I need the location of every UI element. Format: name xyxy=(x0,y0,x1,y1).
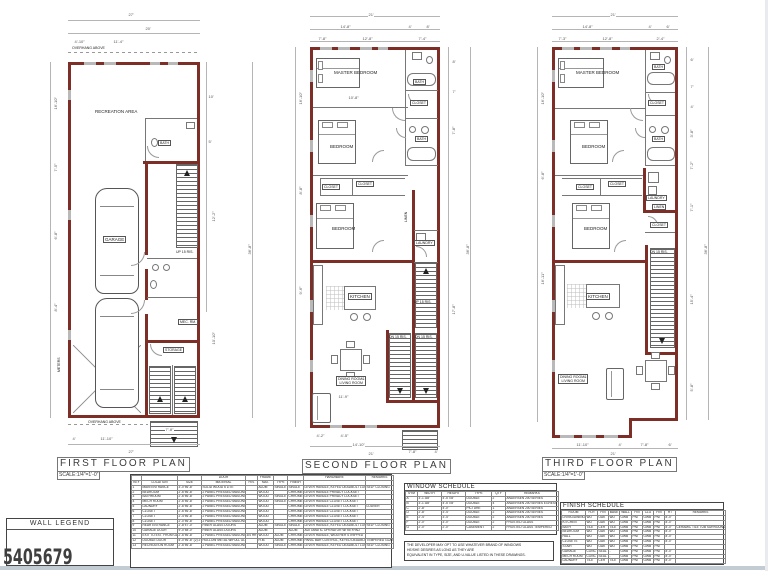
dim-label: 36'-8" xyxy=(248,244,252,255)
window xyxy=(68,330,71,340)
wall xyxy=(68,415,200,418)
stair-arrow xyxy=(423,388,429,394)
room-label: LINEN xyxy=(404,212,408,222)
washer xyxy=(648,172,659,183)
dim-label: 36'-8" xyxy=(704,244,708,255)
door-schedule-table: DOORFRAMEHARDWAREREMARKSKEYLOCATIONSIZEM… xyxy=(130,474,392,568)
room-label: CLOSET xyxy=(356,181,374,187)
interior-wall xyxy=(320,178,321,195)
finish-schedule-title: FINISH SCHEDULE xyxy=(561,503,723,510)
dim-label: 11'-10" xyxy=(576,443,589,447)
note-line: EQUIVALENT IN TYPE, SIZE, AND U-VALUE LI… xyxy=(407,553,551,558)
room-label: DINING ROOM& LIVING ROOM xyxy=(558,374,588,384)
dim-label: 7'-8" xyxy=(408,450,417,454)
dim-label: 6'-8" xyxy=(54,231,58,240)
plan-title: SECOND FLOOR PLAN xyxy=(302,459,451,474)
dimension-line xyxy=(310,41,440,42)
dim-label: 7'-8" xyxy=(165,428,174,432)
window xyxy=(360,47,372,50)
stool xyxy=(592,312,600,320)
interior-wall xyxy=(405,165,438,166)
dim-label: 16'-10" xyxy=(54,97,58,110)
wall xyxy=(145,340,200,343)
chair xyxy=(668,366,675,375)
window xyxy=(68,90,71,100)
window xyxy=(552,215,555,227)
room-label: MASTER BEDROOM xyxy=(334,70,377,75)
table-row: BATHTILECERTILEGWBPNTGWBPNT8'-0"CERAMIC … xyxy=(562,525,726,530)
window xyxy=(582,435,596,438)
dim-label: 10' xyxy=(208,95,214,99)
entry-steps xyxy=(402,430,438,450)
dim-label: 4' xyxy=(690,105,694,109)
dimension-line xyxy=(537,47,538,422)
room-label: LINEN xyxy=(652,204,666,210)
dim-label: 4' xyxy=(618,443,622,447)
stair-note: UP 15 RIS. xyxy=(176,250,193,254)
wall xyxy=(645,245,648,352)
dim-label: 11'-10" xyxy=(100,437,113,441)
interior-wall xyxy=(600,178,601,195)
window xyxy=(600,47,612,50)
dim-label: 14'-8" xyxy=(340,25,351,29)
interior-wall xyxy=(405,118,438,119)
door-swing xyxy=(612,150,624,162)
window-note: THE DEVELOPER MAY OPT TO USE WHATEVER BR… xyxy=(404,541,554,561)
dimension-line xyxy=(295,47,296,427)
kitchen-counter xyxy=(313,265,323,325)
sink xyxy=(163,264,170,271)
stair-note: DN 15 RIS. xyxy=(650,250,668,254)
wall xyxy=(552,260,647,263)
finish-schedule-table: FINISH SCHEDULE ROOMFLRFINBASEWALLFINCLG… xyxy=(560,502,724,565)
dim-label: 27' xyxy=(128,13,134,17)
dimension-line xyxy=(552,448,678,449)
overhang-dashed-line xyxy=(68,52,200,53)
dimension-line xyxy=(68,33,200,34)
stairs xyxy=(174,366,196,414)
dim-label: 7'-8" xyxy=(640,443,649,447)
room-label: OVERHANG ABOVE xyxy=(88,420,121,424)
door-swing xyxy=(396,128,406,138)
window xyxy=(320,47,332,50)
toilet xyxy=(426,56,433,64)
pillow xyxy=(574,122,585,128)
stair-arrow xyxy=(397,388,403,394)
interior-wall xyxy=(405,90,438,91)
room-label: STORAGE xyxy=(163,347,184,353)
scale-label: SCALE:1/4"=1'-0" xyxy=(57,471,100,480)
room-label: BATH xyxy=(652,136,665,142)
dim-label: 5' xyxy=(208,140,212,144)
room-label: BATH xyxy=(415,136,428,142)
table-row: 11EXIT TO EXT. FROM GARAGE2'-6"x6'-8"2 P… xyxy=(132,534,394,539)
pillow xyxy=(591,205,602,211)
window-schedule-header: SYMWIDTHHEIGHTTYPEQTYREMARKS xyxy=(406,492,559,497)
table-row: 13RECREATION ROOM2'-6"x6'-8"2 PANEL PRES… xyxy=(132,543,394,548)
dim-label: 16'-11" xyxy=(541,272,545,285)
dim-label: 12'-2" xyxy=(212,211,216,222)
chair xyxy=(636,366,643,375)
door-schedule-body: 1MAIN ENTRANCE3'-0"x6'-8"SOLID WOOD 6 LI… xyxy=(132,485,394,548)
room-label: KITCHEN xyxy=(348,293,372,300)
window xyxy=(604,435,618,438)
sink xyxy=(649,126,656,133)
table-row: LAUNDRYTILECERTILEGWBPNTGWBPNT8'-0" xyxy=(562,559,726,564)
pillow xyxy=(320,205,331,211)
window xyxy=(620,47,630,50)
room-label: DINING ROOM& LIVING ROOM xyxy=(336,376,366,386)
room-label: CLOSET xyxy=(410,100,428,106)
interior-wall xyxy=(145,118,146,163)
dim-label: 8' xyxy=(452,60,456,64)
interior-wall xyxy=(562,178,642,179)
pillow xyxy=(576,205,587,211)
interior-wall xyxy=(562,195,642,196)
door-swing xyxy=(150,344,162,356)
interior-wall xyxy=(145,118,197,119)
wall-legend-title: WALL LEGEND xyxy=(7,519,113,530)
room-label: CLOSET xyxy=(648,100,666,106)
bathtub xyxy=(647,72,675,85)
dim-label: 4' xyxy=(408,25,412,29)
window xyxy=(310,70,313,82)
sink xyxy=(412,52,422,60)
dimension-line xyxy=(310,16,440,17)
dim-label: 9'-6" xyxy=(299,286,303,295)
dimension-line xyxy=(552,29,678,30)
dim-label: 7' xyxy=(690,85,694,89)
door-swing xyxy=(392,108,405,121)
dim-label: 4'-2" xyxy=(316,434,325,438)
dim-label: 2'-4" xyxy=(656,37,665,41)
pillow xyxy=(318,74,323,83)
interior-wall xyxy=(645,232,675,233)
stair-arrow xyxy=(184,170,190,176)
car xyxy=(95,298,139,408)
pillow xyxy=(337,122,348,128)
door-swing xyxy=(131,300,145,314)
dim-label: 4' xyxy=(648,25,652,29)
window xyxy=(562,47,574,50)
wall xyxy=(643,210,678,213)
room-label: CLOSET xyxy=(608,181,626,187)
pillow xyxy=(589,122,600,128)
chair xyxy=(346,341,355,348)
window xyxy=(580,47,592,50)
sofa xyxy=(312,393,331,423)
dryer xyxy=(648,186,657,195)
wall xyxy=(437,47,440,428)
stair-note: DN 15 RIS. xyxy=(415,335,433,339)
wall xyxy=(675,47,678,420)
window-schedule-title: WINDOW SCHEDULE xyxy=(405,484,556,491)
door-swing xyxy=(614,240,626,252)
dim-label: 21' xyxy=(610,452,616,456)
room-label: BEDROOM xyxy=(330,144,353,149)
scale-label: SCALE:1/4"=1'-0" xyxy=(542,471,585,480)
dim-label: 7'-4" xyxy=(418,37,427,41)
door-opening xyxy=(145,300,148,314)
stair-arrow xyxy=(182,396,188,402)
stairs xyxy=(149,366,171,414)
pillow xyxy=(318,61,323,70)
dim-label: 8'-4" xyxy=(54,303,58,312)
dim-label: 5'-8" xyxy=(690,383,694,392)
stair-arrow xyxy=(171,437,177,443)
dim-label: 11'-4" xyxy=(113,40,124,44)
dim-label: 7'-8" xyxy=(318,37,327,41)
wall xyxy=(630,418,678,421)
door-swing xyxy=(635,128,645,138)
interior-wall xyxy=(645,50,646,165)
room-label: MASTER BEDROOM xyxy=(576,70,619,75)
room-label-line: LIVING ROOM xyxy=(338,381,364,385)
sink xyxy=(186,122,195,129)
room-label: MEC. RM. xyxy=(178,319,198,325)
room-label: RECREATION AREA xyxy=(95,109,137,114)
sink xyxy=(650,52,660,60)
stair-note: UP 15 RIS. xyxy=(414,300,431,304)
window xyxy=(552,140,555,152)
dimension-line xyxy=(708,47,709,420)
bathtub xyxy=(407,147,436,161)
stair-note: DN 15 RIS. xyxy=(389,335,407,339)
dim-label: 7'-1" xyxy=(690,203,694,212)
room-label: BATH xyxy=(652,64,665,70)
door-swing xyxy=(630,108,643,121)
window xyxy=(378,47,388,50)
room-label-line: LIVING ROOM xyxy=(560,379,586,383)
interior-wall xyxy=(645,92,675,93)
dim-label: 8'-8" xyxy=(299,186,303,195)
bathtub xyxy=(647,147,675,161)
dim-label: 7'-3" xyxy=(558,37,567,41)
toilet xyxy=(150,280,157,289)
door-swing xyxy=(147,146,159,158)
room-label: CLOSET xyxy=(650,222,668,228)
interior-wall xyxy=(313,175,408,176)
door-swing xyxy=(372,240,384,252)
plan-title: THIRD FLOOR PLAN xyxy=(542,457,677,472)
window xyxy=(330,425,342,428)
room-label: BATH xyxy=(158,140,171,146)
dimension-line xyxy=(552,41,678,42)
finish-schedule-body: LIVING/DININGWDOAKWDGWBPNTGWBPNT8'-0"KIT… xyxy=(562,515,726,563)
plan-title: FIRST FLOOR PLAN xyxy=(57,457,190,472)
interior-wall xyxy=(645,165,675,166)
window xyxy=(168,62,178,65)
dimension-line xyxy=(68,20,200,21)
window xyxy=(310,215,313,227)
window xyxy=(310,140,313,152)
interior-wall xyxy=(555,175,645,176)
window xyxy=(150,62,160,65)
dim-label: 21' xyxy=(368,13,374,17)
pillow xyxy=(322,122,333,128)
dim-label: 4'-5" xyxy=(340,434,349,438)
interior-wall xyxy=(414,230,438,231)
table-row: SYMWIDTHHEIGHTTYPEQTYREMARKS xyxy=(406,492,559,497)
window xyxy=(310,360,313,372)
room-label: CLOSET xyxy=(322,184,340,190)
dim-label: 27' xyxy=(128,450,134,454)
room-label: METERS xyxy=(57,357,61,372)
dim-label: 20' xyxy=(145,27,151,31)
interior-wall xyxy=(147,258,197,259)
stair-arrow xyxy=(423,268,429,274)
room-label: GARAGE xyxy=(103,236,126,243)
dimension-line xyxy=(448,47,449,427)
dim-label: 4' xyxy=(72,437,76,441)
room-label: LAUNDRY xyxy=(646,195,667,201)
dim-label: 7'-8" xyxy=(452,126,456,135)
room-label: BATH xyxy=(413,79,426,85)
room-label: OVERHANG ABOVE xyxy=(72,46,105,50)
drawing-sheet: OVERHANG ABOVE RECREATION AREA BATH GARA… xyxy=(0,0,768,571)
wall xyxy=(643,168,646,213)
pillow xyxy=(560,61,565,70)
dim-label: 4'-10" xyxy=(74,40,85,44)
door-swing xyxy=(131,252,145,266)
toilet xyxy=(421,126,429,134)
dim-label: 16'-10" xyxy=(541,92,545,105)
toilet xyxy=(661,126,669,134)
dim-label: 12'-8" xyxy=(602,37,613,41)
dim-label: 15'-4" xyxy=(690,294,694,305)
door-swing xyxy=(372,150,384,162)
wall xyxy=(645,352,678,355)
dimension-line xyxy=(310,29,440,30)
dim-label: 16'-10" xyxy=(299,92,303,105)
interior-wall xyxy=(320,195,405,196)
dim-label: 14'-10" xyxy=(352,443,365,447)
dim-label: 21' xyxy=(610,13,616,17)
dimension-line xyxy=(686,47,687,420)
dim-label: 6' xyxy=(666,25,670,29)
dim-label: 7' xyxy=(452,90,456,94)
dim-label: 10'-8" xyxy=(348,96,359,100)
stool xyxy=(363,313,371,321)
interior-wall xyxy=(147,297,197,298)
dim-label: 6' xyxy=(690,58,694,62)
dim-label: 6'-8" xyxy=(541,171,545,180)
door-swing xyxy=(416,246,427,257)
stool xyxy=(605,312,613,320)
window xyxy=(68,210,71,220)
stairs xyxy=(650,248,675,348)
dim-label: 7'-5" xyxy=(54,163,58,172)
dimension-line xyxy=(50,62,51,418)
interior-wall xyxy=(172,365,173,415)
window xyxy=(552,360,555,372)
interior-wall xyxy=(645,115,675,116)
room-label: KITCHEN xyxy=(586,293,610,300)
room-label: BEDROOM xyxy=(584,226,607,231)
dimension-line xyxy=(310,446,440,447)
window xyxy=(338,47,350,50)
room-label: CLOSET xyxy=(576,184,594,190)
wall xyxy=(68,62,71,418)
dimension-line xyxy=(252,62,253,418)
dim-label: 21' xyxy=(368,452,374,456)
sink xyxy=(152,264,159,271)
stairs xyxy=(176,164,198,248)
chair xyxy=(651,352,660,359)
dim-label: 12'-8" xyxy=(362,37,373,41)
wall xyxy=(310,260,414,263)
wall xyxy=(145,161,148,418)
kitchen-counter xyxy=(555,265,565,325)
wall xyxy=(386,400,440,403)
window-schedule-table: WINDOW SCHEDULE SYMWIDTHHEIGHTTYPEQTYREM… xyxy=(404,483,557,535)
dimension-line xyxy=(68,444,200,445)
dim-label: 10'-10" xyxy=(212,332,216,345)
table-row: G2'-0"2'-0"CASEMENT2FROSTED GLASS TEMPER… xyxy=(406,525,559,530)
window xyxy=(560,435,574,438)
window xyxy=(84,62,96,65)
window-schedule-body: A3'-1 3/8"4'-5 7/8"DOUBLE2ANDERSEN 200 S… xyxy=(406,496,559,530)
dim-label: 8' xyxy=(426,25,430,29)
pillow xyxy=(560,74,565,83)
dimension-line xyxy=(206,62,207,312)
dim-label: 17'-8" xyxy=(452,304,456,315)
dim-label: 7'-2" xyxy=(690,161,694,170)
sofa xyxy=(606,368,624,400)
dim-label: 4' xyxy=(434,450,438,454)
room-label: LAUNDRY xyxy=(414,240,435,246)
sink xyxy=(409,126,416,133)
chair xyxy=(651,383,660,390)
interior-wall xyxy=(405,50,406,165)
dim-label: 14'-8" xyxy=(582,25,593,29)
toilet xyxy=(664,56,671,64)
stair-arrow xyxy=(157,396,163,402)
dim-label: 6' xyxy=(668,443,672,447)
dim-label: 36'-8" xyxy=(466,244,470,255)
stair-arrow xyxy=(659,338,665,344)
dimension-line xyxy=(470,47,471,427)
chair xyxy=(363,355,370,364)
door-schedule-header: DOORFRAMEHARDWAREREMARKSKEYLOCATIONSIZEM… xyxy=(132,476,394,486)
chair xyxy=(331,355,338,364)
dim-label: 3'-8" xyxy=(690,129,694,138)
dining-table xyxy=(645,360,667,382)
dim-label: 11'-9" xyxy=(338,395,349,399)
window xyxy=(552,70,555,82)
interior-wall xyxy=(352,178,353,195)
stool xyxy=(350,313,358,321)
watermark-number: 5405679 xyxy=(3,545,73,569)
dining-table xyxy=(340,349,362,371)
pillow xyxy=(335,205,346,211)
window xyxy=(104,62,116,65)
room-label: BEDROOM xyxy=(332,226,355,231)
room-label: BEDROOM xyxy=(582,144,605,149)
interior-wall xyxy=(320,178,405,179)
window xyxy=(365,425,377,428)
